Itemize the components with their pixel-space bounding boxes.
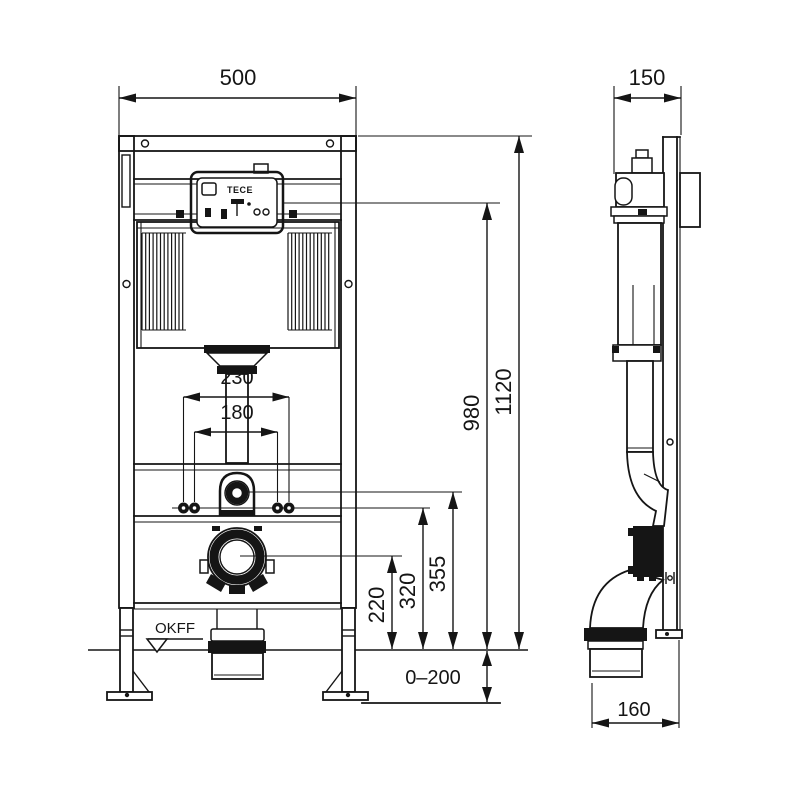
svg-text:230: 230: [220, 367, 253, 389]
technical-drawing: TECE: [0, 0, 800, 800]
svg-text:1120: 1120: [491, 368, 516, 415]
svg-text:355: 355: [425, 556, 450, 593]
cistern-side: [611, 150, 667, 361]
cistern-tank: [137, 222, 339, 348]
svg-text:160: 160: [617, 699, 650, 721]
svg-text:0–200: 0–200: [405, 667, 461, 689]
floor-level-label: OKFF: [155, 620, 195, 637]
svg-text:220: 220: [364, 587, 389, 624]
svg-text:150: 150: [629, 65, 666, 90]
svg-text:980: 980: [459, 395, 484, 432]
svg-text:500: 500: [220, 65, 257, 90]
svg-text:320: 320: [395, 573, 420, 610]
svg-text:180: 180: [220, 402, 253, 424]
wall-bracket: [680, 173, 700, 227]
brand-logo: TECE: [227, 185, 253, 195]
